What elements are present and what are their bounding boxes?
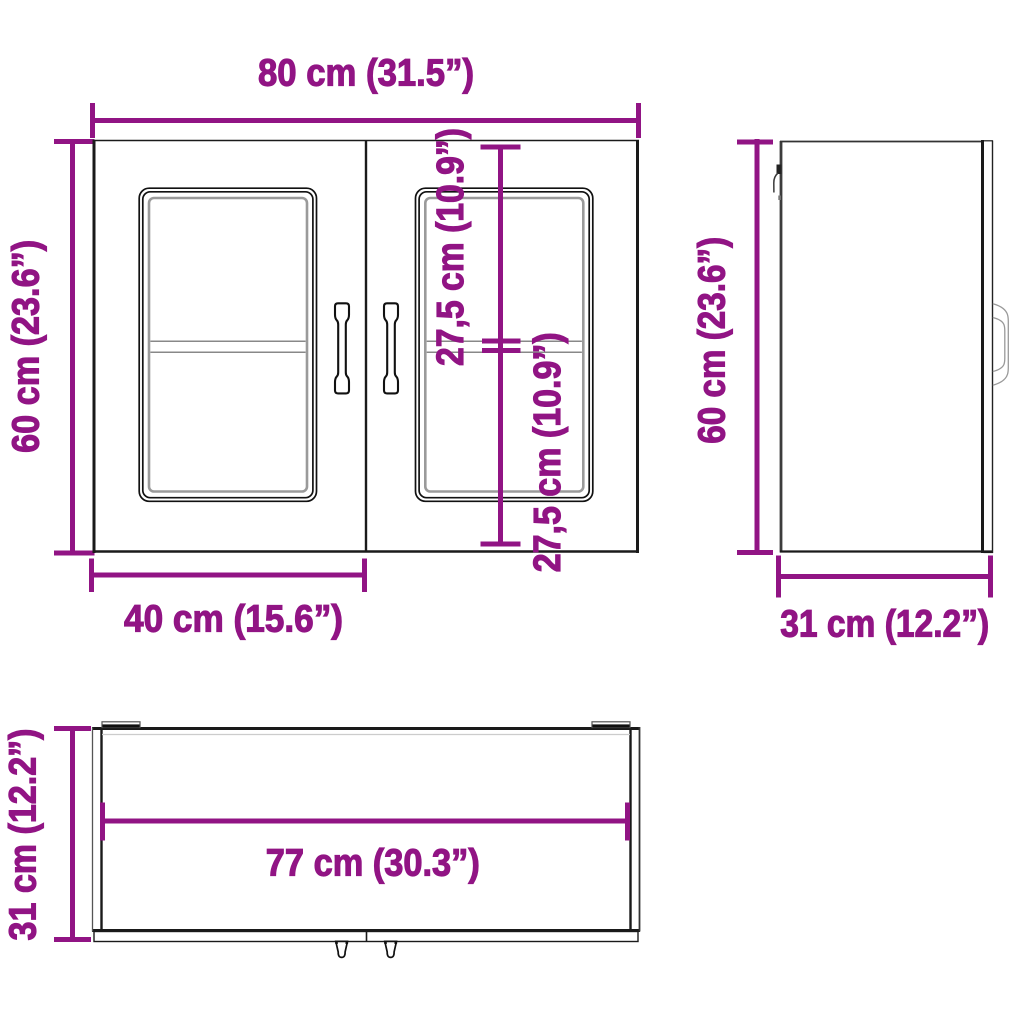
svg-text:27,5 cm (10.9”): 27,5 cm (10.9”) <box>527 332 569 572</box>
svg-text:31 cm (12.2”): 31 cm (12.2”) <box>3 729 45 941</box>
svg-text:80 cm (31.5”): 80 cm (31.5”) <box>258 53 474 95</box>
svg-text:60 cm (23.6”): 60 cm (23.6”) <box>6 240 48 453</box>
svg-text:40 cm (15.6”): 40 cm (15.6”) <box>124 599 343 641</box>
svg-text:77 cm (30.3”): 77 cm (30.3”) <box>266 843 480 885</box>
svg-text:27,5 cm (10.9”): 27,5 cm (10.9”) <box>430 128 472 366</box>
svg-text:31 cm (12.2”): 31 cm (12.2”) <box>780 604 989 646</box>
svg-text:60 cm (23.6”): 60 cm (23.6”) <box>692 237 734 444</box>
